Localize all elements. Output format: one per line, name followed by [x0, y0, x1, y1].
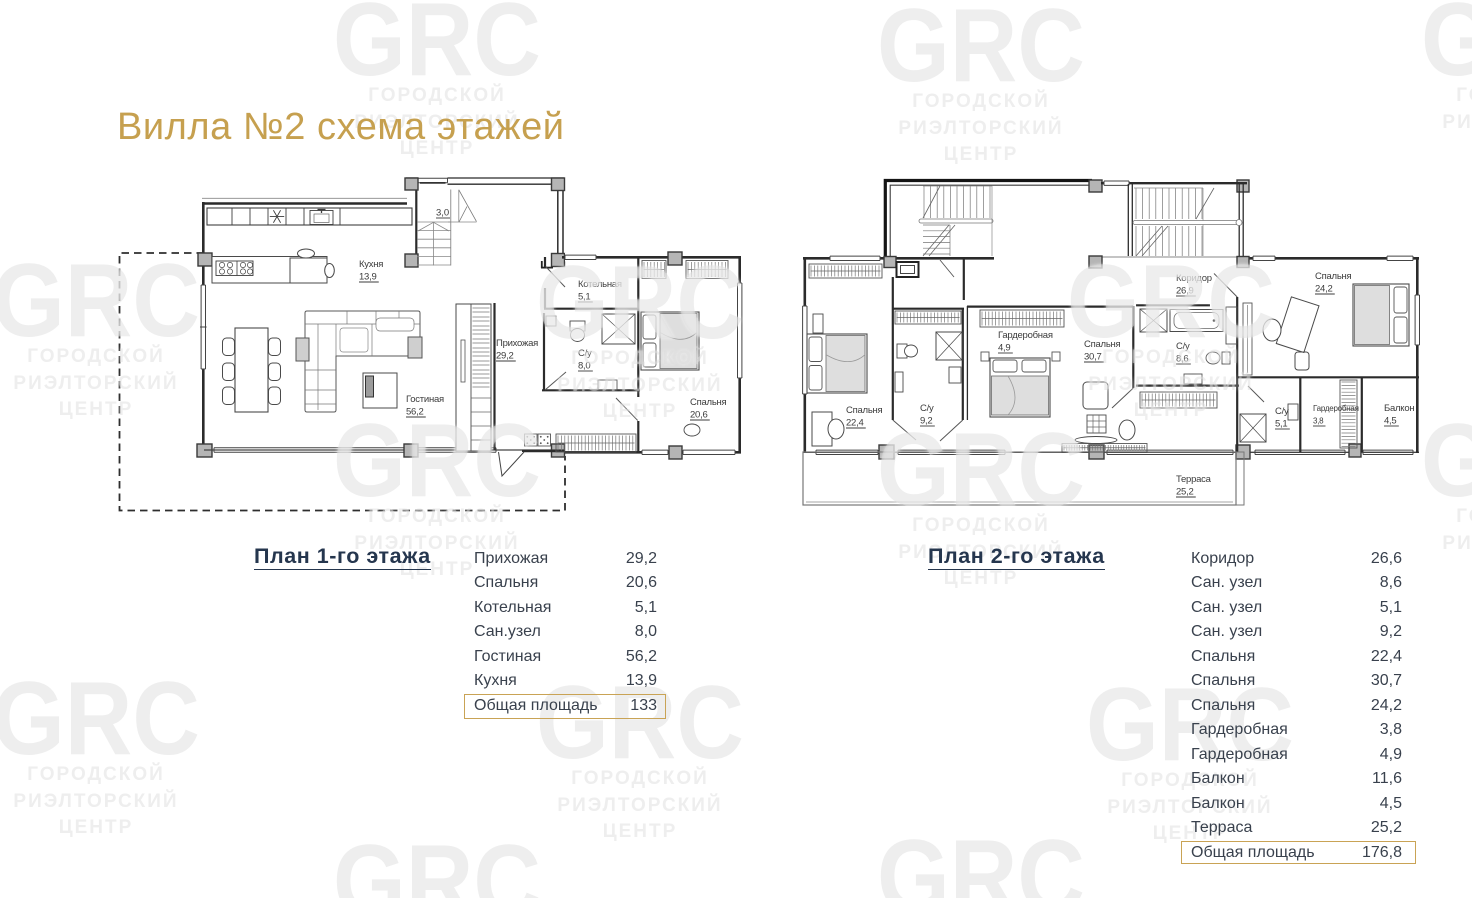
- svg-text:С/у: С/у: [1176, 341, 1190, 352]
- svg-text:5,1: 5,1: [1275, 419, 1287, 430]
- svg-text:Прихожая: Прихожая: [496, 338, 538, 349]
- svg-text:9,2: 9,2: [920, 416, 932, 427]
- svg-text:3,0: 3,0: [436, 208, 449, 219]
- svg-text:4,5: 4,5: [1384, 416, 1396, 427]
- svg-text:Гардеробная: Гардеробная: [998, 330, 1053, 341]
- svg-text:26,9: 26,9: [1176, 286, 1194, 297]
- svg-text:8,0: 8,0: [578, 361, 590, 372]
- svg-text:Спальня: Спальня: [690, 397, 727, 408]
- svg-text:8,6: 8,6: [1176, 354, 1188, 365]
- svg-text:20,6: 20,6: [690, 410, 708, 421]
- svg-text:30,7: 30,7: [1084, 352, 1102, 363]
- svg-text:3,8: 3,8: [1313, 417, 1324, 426]
- svg-text:Спальня: Спальня: [1084, 339, 1121, 350]
- svg-text:С/у: С/у: [578, 348, 592, 359]
- svg-text:Балкон: Балкон: [1384, 403, 1414, 414]
- svg-text:56,2: 56,2: [406, 407, 424, 418]
- svg-text:Терраса: Терраса: [1176, 474, 1212, 485]
- svg-text:24,2: 24,2: [1315, 284, 1333, 295]
- svg-text:22,4: 22,4: [846, 418, 864, 429]
- svg-text:Кухня: Кухня: [359, 259, 383, 270]
- svg-text:4,9: 4,9: [998, 343, 1010, 354]
- svg-text:29,2: 29,2: [496, 351, 514, 362]
- svg-text:Котельная: Котельная: [578, 279, 622, 290]
- svg-text:25,2: 25,2: [1176, 487, 1194, 498]
- svg-text:Гостиная: Гостиная: [406, 394, 444, 405]
- svg-text:Спальня: Спальня: [1315, 271, 1352, 282]
- svg-text:С/у: С/у: [1275, 406, 1289, 417]
- svg-text:5,1: 5,1: [578, 292, 590, 303]
- svg-text:Спальня: Спальня: [846, 405, 883, 416]
- svg-text:С/у: С/у: [920, 403, 934, 414]
- svg-text:Гардеробная: Гардеробная: [1313, 404, 1359, 413]
- svg-text:Коридор: Коридор: [1176, 273, 1212, 284]
- svg-text:13,9: 13,9: [359, 272, 377, 283]
